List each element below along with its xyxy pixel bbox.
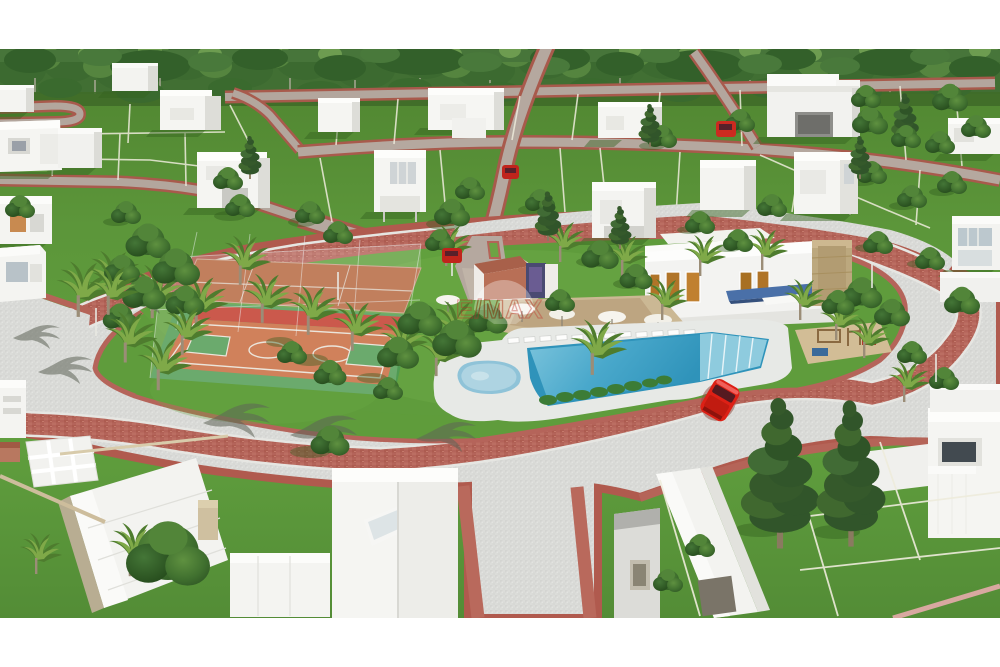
svg-text:E/MAX: E/MAX [456, 294, 543, 324]
